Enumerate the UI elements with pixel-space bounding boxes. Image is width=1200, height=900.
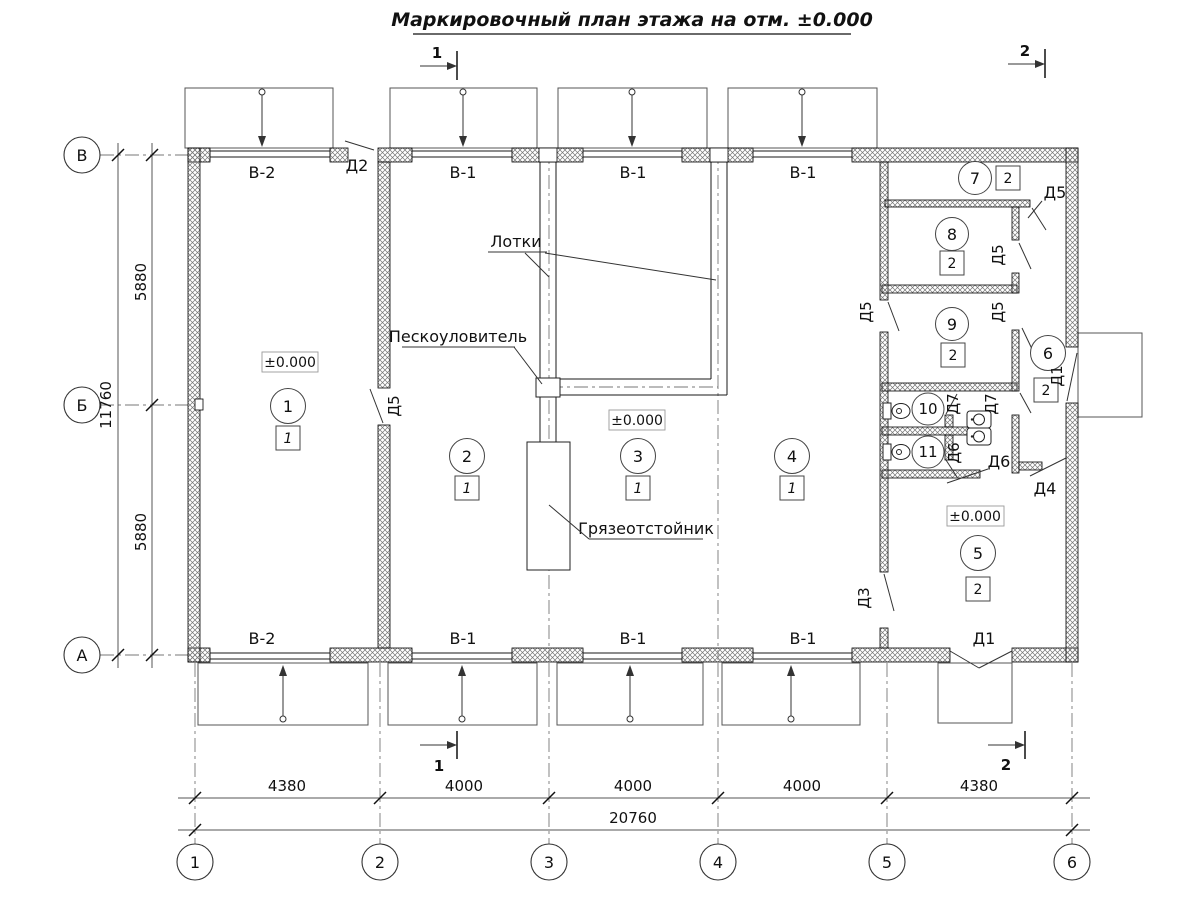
page-title: Маркировочный план этажа на отм. ±0.000 — [391, 9, 873, 31]
wall-segment — [378, 148, 412, 162]
annotation-mud-settler: Грязеотстойник — [549, 505, 714, 539]
grid-label-col5: 5 — [882, 853, 892, 872]
entrance-landing-bottom — [938, 663, 1012, 723]
grid-label-col2: 2 — [375, 853, 385, 872]
wall-stub — [945, 415, 953, 427]
dim-value: 4380 — [268, 777, 306, 795]
grid-label-rowB: Б — [77, 396, 88, 415]
wall-right — [1066, 148, 1078, 347]
door-tag-d7: Д7 — [982, 393, 1000, 414]
wall-axis2 — [378, 162, 390, 388]
annotation-text: Лотки — [490, 232, 541, 251]
grid-label-col1: 1 — [190, 853, 200, 872]
ramp-arrow-origin — [259, 89, 265, 95]
ramp-arrow-origin — [280, 716, 286, 722]
dim-value: 4000 — [614, 777, 652, 795]
category-value: 2 — [1004, 171, 1013, 187]
window-top-1 — [210, 149, 330, 161]
ramp-arrow-head — [628, 136, 636, 147]
ramp-arrow-head — [279, 665, 287, 676]
room-number: 6 — [1043, 344, 1053, 363]
category-value: 2 — [948, 256, 957, 272]
dimensions-bottom: 4380 4000 4000 4000 4380 20760 — [178, 777, 1090, 836]
window-tag: В-2 — [249, 629, 276, 648]
window-tag: В-2 — [249, 163, 276, 182]
room-number: 8 — [947, 225, 957, 244]
ramp-arrow-head — [258, 136, 266, 147]
elevation-value: ±0.000 — [611, 413, 663, 429]
section-label: 2 — [1001, 756, 1011, 774]
section-mark-1-top: 1 — [420, 44, 457, 80]
annotation-text: Пескоуловитель — [389, 327, 527, 346]
wall-room9-10 — [882, 383, 1017, 391]
wall-room7 — [885, 200, 1030, 207]
section-label: 1 — [434, 757, 444, 775]
grid-axis-lines — [100, 150, 1072, 844]
wall-segment — [852, 648, 950, 662]
grid-bubbles: 1 2 3 4 5 6 В Б А — [64, 137, 1090, 880]
door-tag-d7: Д7 — [944, 393, 962, 414]
window-bottom-1 — [210, 649, 330, 661]
wall-segment — [330, 648, 412, 662]
windows — [210, 149, 852, 661]
door-tag-d6: Д6 — [988, 452, 1011, 471]
section-mark-2-top: 2 — [1008, 42, 1045, 78]
ramp-arrows-top — [258, 89, 806, 147]
door-tag-d5: Д5 — [857, 301, 875, 322]
elevation-value: ±0.000 — [264, 355, 316, 371]
axis-notch — [195, 399, 203, 410]
door-leaf-d1-right — [1067, 353, 1077, 401]
category-value: 1 — [284, 431, 293, 447]
grid-label-col4: 4 — [713, 853, 723, 872]
room-number: 9 — [947, 315, 957, 334]
section-mark-2-bottom: 2 — [988, 731, 1025, 774]
window-bottom-4 — [753, 649, 852, 661]
drawing-title: Маркировочный план этажа на отм. ±0.000 — [391, 9, 873, 34]
door-leaf-d7 — [1020, 393, 1031, 413]
door-tag-d3: Д3 — [855, 587, 873, 608]
category-value: 2 — [974, 582, 983, 598]
mud-settler-tank — [527, 442, 570, 570]
window-tag: В-1 — [620, 163, 647, 182]
ramp-arrow-origin — [799, 89, 805, 95]
annotation-text: Грязеотстойник — [578, 519, 714, 538]
wall-corridor — [1012, 330, 1019, 391]
floor-plan-page: 4380 4000 4000 4000 4380 20760 5880 5880… — [0, 0, 1200, 900]
annotation-leader — [514, 347, 542, 384]
door-tag-d2: Д2 — [346, 156, 369, 175]
room-number: 3 — [633, 447, 643, 466]
wall-segment — [682, 648, 753, 662]
window-top-2 — [412, 149, 512, 161]
wall-stub — [1019, 462, 1042, 470]
wall-segment — [512, 648, 583, 662]
wall-axis5 — [880, 628, 888, 648]
drainage-system — [527, 162, 727, 570]
category-value: 2 — [949, 348, 958, 364]
grid-label-rowV: В — [77, 146, 88, 165]
door-tag-d6: Д6 — [945, 442, 963, 463]
dim-value: 4000 — [445, 777, 483, 795]
elevation-value: ±0.000 — [949, 509, 1001, 525]
door-tag-d5: Д5 — [1044, 183, 1067, 202]
door-tag-d5: Д5 — [385, 395, 403, 416]
wall-segment — [852, 148, 1078, 162]
annotation-trays: Лотки — [488, 232, 716, 280]
wall-corridor — [1012, 415, 1019, 473]
window-bottom-2 — [412, 649, 512, 661]
room-number: 7 — [970, 169, 980, 188]
category-value: 1 — [463, 481, 472, 497]
annotation-leader — [525, 253, 549, 277]
door-tag-d5: Д5 — [989, 244, 1007, 265]
window-tag: В-1 — [790, 163, 817, 182]
section-label: 1 — [432, 44, 442, 62]
ramp-arrow-head — [458, 665, 466, 676]
wall-axis2 — [378, 425, 390, 648]
wall-corridor — [1012, 207, 1019, 240]
ramp-arrow-head — [787, 665, 795, 676]
door-tag-d1: Д1 — [1048, 365, 1066, 386]
room-number: 1 — [283, 397, 293, 416]
floor-plan-drawing: 4380 4000 4000 4000 4380 20760 5880 5880… — [0, 0, 1200, 900]
dim-value: 5880 — [132, 513, 150, 551]
door-tag-d4: Д4 — [1034, 479, 1057, 498]
room-number: 5 — [973, 544, 983, 563]
wall-axis5 — [880, 162, 888, 300]
door-leaf-d5-axis5 — [888, 302, 899, 331]
door-leaf-d3 — [884, 574, 894, 611]
grid-label-col6: 6 — [1067, 853, 1077, 872]
window-tag: В-1 — [620, 629, 647, 648]
room-number: 4 — [787, 447, 797, 466]
dim-value: 4000 — [783, 777, 821, 795]
window-tag: В-1 — [450, 629, 477, 648]
ramp-arrow-origin — [460, 89, 466, 95]
dim-value: 4380 — [960, 777, 998, 795]
ramp-arrow-head — [459, 136, 467, 147]
door-leaf-d5-axis2 — [370, 389, 383, 423]
annotation-sand-trap: Пескоуловитель — [389, 327, 542, 384]
ramp-arrow-origin — [788, 716, 794, 722]
ramp-arrow-origin — [627, 716, 633, 722]
wall-corridor — [1012, 273, 1019, 293]
entrance-porch-right — [1078, 333, 1142, 417]
category-value: 1 — [634, 481, 643, 497]
door-leaf-d1-bottom — [950, 651, 979, 668]
door-leaf-d1-bottom — [979, 651, 1012, 668]
toilet-room10 — [883, 403, 910, 419]
section-label: 2 — [1020, 42, 1030, 60]
dim-total-value: 20760 — [609, 809, 657, 827]
ramp-top-1 — [185, 88, 333, 148]
ramp-arrow-head — [798, 136, 806, 147]
window-tag: В-1 — [790, 629, 817, 648]
ramp-arrow-origin — [459, 716, 465, 722]
door-tag-d5: Д5 — [989, 301, 1007, 322]
ramp-arrow-head — [626, 665, 634, 676]
door-leaf-d5-room9 — [1022, 328, 1032, 349]
window-bottom-3 — [583, 649, 682, 661]
washbasin — [967, 428, 991, 445]
dim-value: 5880 — [132, 263, 150, 301]
room-number: 10 — [918, 400, 937, 418]
ramp-arrow-origin — [629, 89, 635, 95]
dimensions-left: 5880 5880 11760 — [97, 143, 158, 668]
annotation-leader — [545, 253, 716, 280]
window-top-3 — [583, 149, 682, 161]
channel-wall-sleeve — [710, 148, 728, 162]
door-leaf-d5-room8 — [1019, 243, 1031, 269]
grid-label-rowA: А — [77, 646, 88, 665]
grid-label-col3: 3 — [544, 853, 554, 872]
room-number: 2 — [462, 447, 472, 466]
toilet-room11 — [883, 444, 910, 460]
channel-wall-sleeve — [539, 148, 557, 162]
wall-right — [1066, 403, 1078, 662]
door-leaf-d2 — [345, 141, 374, 150]
door-tag-d1: Д1 — [973, 629, 996, 648]
section-mark-1-bottom: 1 — [420, 731, 457, 775]
wall-room10-11 — [882, 427, 980, 435]
category-value: 1 — [788, 481, 797, 497]
door-leaf-d5-room7 — [1032, 208, 1046, 230]
window-tag: В-1 — [450, 163, 477, 182]
window-top-4 — [753, 149, 852, 161]
room-number: 11 — [918, 443, 937, 461]
wall-room8-9 — [882, 285, 1017, 293]
